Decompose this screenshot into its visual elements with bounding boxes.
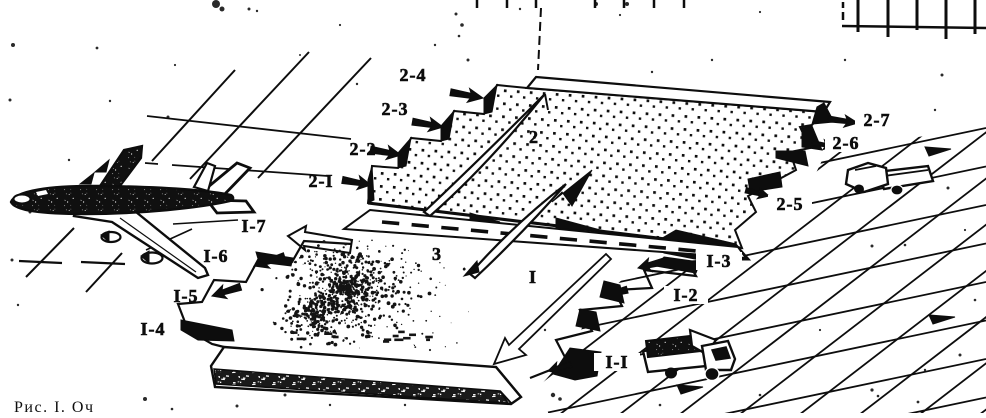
svg-text:2-5: 2-5 <box>777 194 804 214</box>
svg-text:3: 3 <box>432 244 442 264</box>
svg-text:I-I: I-I <box>605 352 628 372</box>
svg-text:I-7: I-7 <box>242 216 267 236</box>
svg-text:2-6: 2-6 <box>833 133 860 153</box>
svg-text:2-4: 2-4 <box>400 65 427 85</box>
svg-text:I: I <box>529 267 537 287</box>
svg-text:2-2: 2-2 <box>350 139 377 159</box>
svg-text:I-5: I-5 <box>174 286 199 306</box>
svg-text:I-6: I-6 <box>204 246 229 266</box>
svg-text:2-7: 2-7 <box>864 110 891 130</box>
svg-text:I-4: I-4 <box>141 319 166 339</box>
svg-text:Рис. I. Оч: Рис. I. Оч <box>14 399 95 413</box>
svg-text:2: 2 <box>529 127 539 147</box>
svg-text:I-2: I-2 <box>674 285 699 305</box>
svg-text:2-3: 2-3 <box>382 99 409 119</box>
svg-text:I-3: I-3 <box>707 251 732 271</box>
svg-text:2-I: 2-I <box>309 171 334 191</box>
